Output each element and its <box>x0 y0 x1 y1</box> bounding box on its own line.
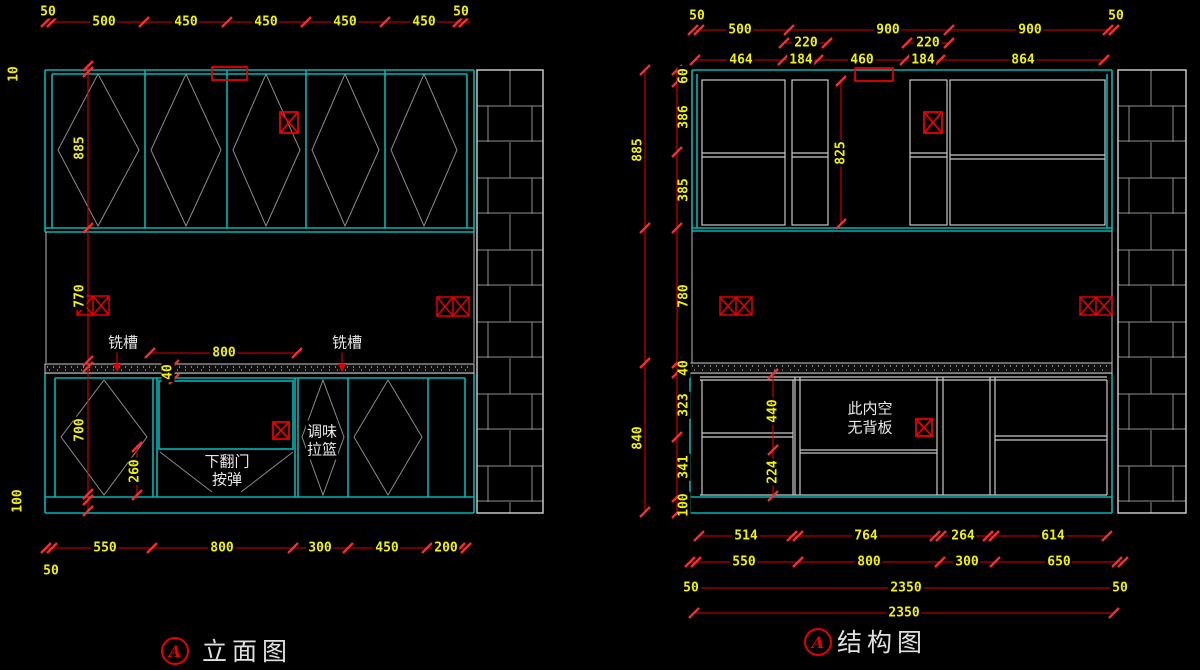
socket-right <box>437 297 469 316</box>
brick-wall-right <box>1118 70 1186 513</box>
dim-label: 614 <box>1039 530 1066 543</box>
dim-label: 100 <box>678 491 691 518</box>
light-box-marker-right <box>924 112 942 133</box>
dim-label: 450 <box>373 542 400 555</box>
dim-label: 450 <box>410 16 437 29</box>
dim-label: 900 <box>874 24 901 37</box>
left-dim-lines <box>45 22 470 548</box>
dim-label: 800 <box>855 556 882 569</box>
brick-wall-left <box>477 70 543 513</box>
dim-label: 500 <box>726 24 753 37</box>
dim-label-825: 825 <box>835 139 848 166</box>
dim-label: 386 <box>678 103 691 130</box>
left-cabinet-outline <box>45 70 474 513</box>
light-box-marker <box>280 112 298 133</box>
dim-label: 184 <box>787 54 814 67</box>
milling-groove-label-right: 铣槽 <box>331 332 363 353</box>
dim-label: 100 <box>12 487 25 514</box>
left-door-panels <box>58 74 457 495</box>
dim-label: 220 <box>792 37 819 50</box>
left-elevation-drawing <box>41 17 543 553</box>
dim-label-40: 40 <box>162 362 175 382</box>
dim-label: 885 <box>74 134 87 161</box>
dim-label: 184 <box>909 54 936 67</box>
dim-label: 450 <box>252 16 279 29</box>
dim-label: 50 <box>687 10 707 23</box>
socket-right-right-view <box>1080 297 1112 315</box>
dim-label: 264 <box>949 530 976 543</box>
no-back-panel-note-line2: 无背板 <box>846 417 893 438</box>
dim-label: 300 <box>306 542 333 555</box>
dim-label-800: 800 <box>210 347 237 360</box>
dim-label: 864 <box>1009 54 1036 67</box>
right-cabinet-outline <box>690 70 1112 513</box>
right-dim-lines <box>645 30 1123 613</box>
cad-canvas: 50 500 450 450 450 450 50 10 885 770 700… <box>0 0 1200 670</box>
dim-label: 764 <box>852 530 879 543</box>
right-structure-drawing <box>640 25 1186 618</box>
dim-label: 840 <box>632 424 645 451</box>
dim-label: 700 <box>74 416 87 443</box>
dim-label: 10 <box>8 64 21 84</box>
dim-label: 464 <box>727 54 754 67</box>
dim-label: 300 <box>953 556 980 569</box>
view-title-right: 结构图 <box>837 623 927 659</box>
dim-label: 514 <box>732 530 759 543</box>
view-badge-right: A <box>804 628 832 656</box>
dim-label: 50 <box>38 6 58 19</box>
dim-label: 341 <box>678 453 691 480</box>
dim-label: 50 <box>451 6 471 19</box>
flip-door-label-line2: 按弹 <box>211 469 243 490</box>
dim-label: 780 <box>678 282 691 309</box>
dim-label: 200 <box>432 542 459 555</box>
right-countertop <box>690 363 1112 373</box>
spice-basket-label-line2: 拉篮 <box>306 439 338 460</box>
socket-left-right-view <box>720 297 752 315</box>
dim-label: 885 <box>632 136 645 163</box>
left-countertop <box>45 364 474 373</box>
dim-label: 50 <box>1106 10 1126 23</box>
dim-label: 323 <box>678 391 691 418</box>
dim-label: 450 <box>172 16 199 29</box>
dim-label: 450 <box>331 16 358 29</box>
flip-door-box-marker <box>273 422 289 439</box>
dim-label-260: 260 <box>129 457 142 484</box>
dim-label: 770 <box>74 282 87 309</box>
dim-label: 50 <box>41 565 61 578</box>
view-badge-left: A <box>161 637 189 665</box>
no-back-box-marker <box>916 419 932 436</box>
dim-label: 2350 <box>888 582 923 595</box>
dim-label: 550 <box>91 542 118 555</box>
right-carcass-lines <box>692 80 1112 495</box>
dim-label-440: 440 <box>767 397 780 424</box>
dim-label: 800 <box>208 542 235 555</box>
no-back-panel-note-line1: 此内空 <box>846 398 893 419</box>
dim-label: 220 <box>914 37 941 50</box>
dim-label: 40 <box>678 358 691 378</box>
dim-label: 550 <box>730 556 757 569</box>
dim-label-224: 224 <box>767 458 780 485</box>
left-red-symbols <box>77 67 469 439</box>
dim-label: 60 <box>678 66 691 86</box>
dim-label: 650 <box>1045 556 1072 569</box>
milling-groove-label-left: 铣槽 <box>107 332 139 353</box>
view-title-left: 立面图 <box>202 632 292 668</box>
dim-label: 50 <box>681 582 701 595</box>
dim-label: 900 <box>1016 24 1043 37</box>
dim-label: 500 <box>90 16 117 29</box>
dim-label: 385 <box>678 176 691 203</box>
dim-label: 50 <box>1110 582 1130 595</box>
cad-geometry <box>0 0 1200 670</box>
right-red-symbols <box>720 68 1112 436</box>
dim-label: 460 <box>848 54 875 67</box>
dim-label: 2350 <box>886 607 921 620</box>
